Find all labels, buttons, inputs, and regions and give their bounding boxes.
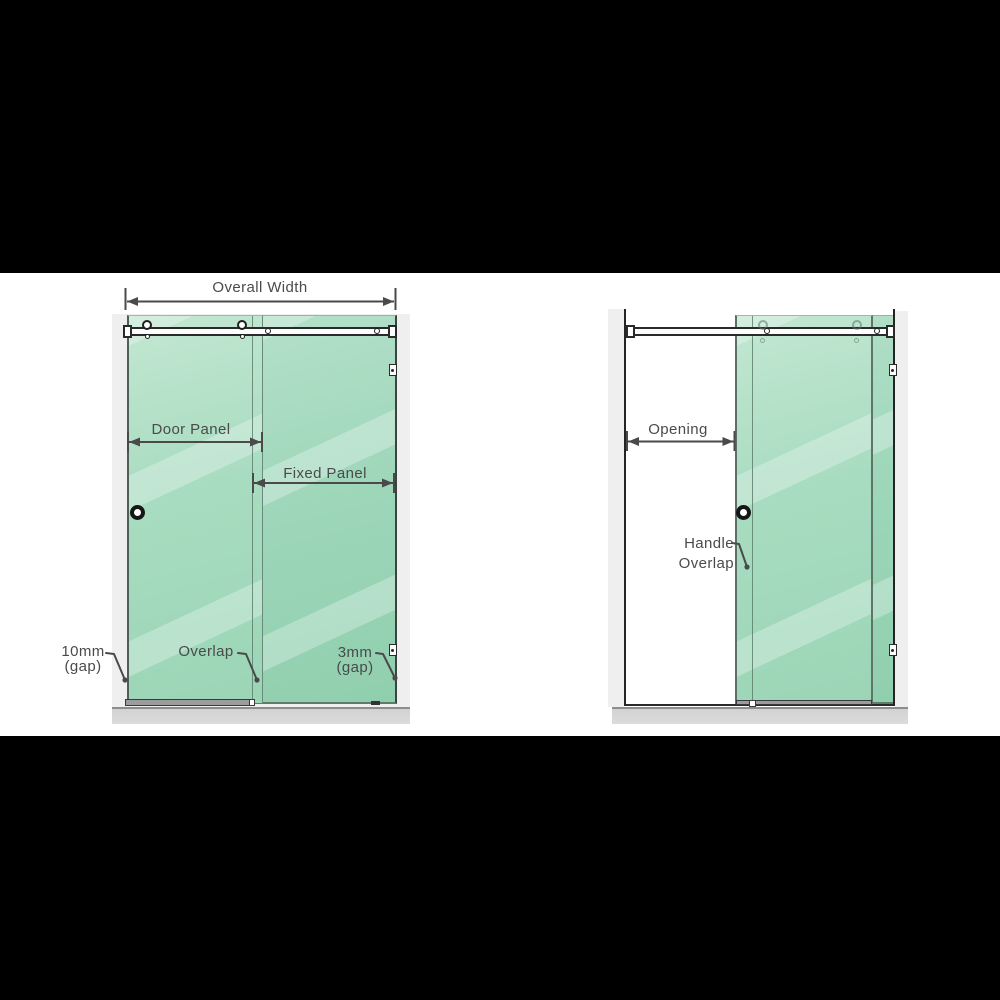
roller-bolt-left-faint <box>760 338 765 343</box>
wall-bracket-bottom-open <box>889 644 897 656</box>
opening-dimension-arrow <box>621 429 741 453</box>
leader-line-10mm-gap <box>104 648 130 686</box>
door-bottom-seal <box>125 699 254 706</box>
roller-bolt-right <box>240 334 245 339</box>
track-mount-dot-right-open <box>874 328 880 334</box>
door-handle-knob <box>130 505 145 520</box>
rail-end-cap-right-open <box>886 325 895 338</box>
door-roller-right-faint <box>852 320 862 330</box>
track-mount-dot-left <box>265 328 271 334</box>
door-panel-dimension-arrow <box>122 430 268 454</box>
floor-base-open <box>612 707 908 724</box>
roller-bolt-right-faint <box>854 338 859 343</box>
track-mount-dot-left-open <box>764 328 770 334</box>
handle-overlap-line1: Handle <box>658 534 734 554</box>
handle-overlap-line2: Overlap <box>658 554 734 574</box>
handle-overlap-label: Handle Overlap <box>658 534 734 574</box>
overall-width-dimension-arrow <box>118 286 402 312</box>
wall-strip-left <box>608 309 624 707</box>
leader-line-3mm-gap <box>374 648 400 684</box>
floor-base <box>112 707 410 724</box>
overlap-label: Overlap <box>171 644 241 659</box>
gap-left-unit: (gap) <box>56 659 110 674</box>
wall-bracket-top <box>389 364 397 376</box>
rail-end-cap-left <box>123 325 132 338</box>
fixed-panel-edge-seam-open <box>752 316 753 703</box>
wall-edge-line-left <box>624 309 626 706</box>
fixed-panel-dimension-arrow <box>247 471 401 495</box>
wall-bracket-top-open <box>889 364 897 376</box>
floor-guide-block <box>749 700 756 707</box>
rail-end-cap-left-open <box>626 325 635 338</box>
door-bottom-seal-open <box>736 700 872 705</box>
door-roller-right <box>237 320 247 330</box>
leader-line-handle-overlap <box>730 538 752 572</box>
rail-end-cap-right <box>388 325 397 338</box>
fixed-panel-bottom-block <box>371 701 380 705</box>
gap-left-label: 10mm (gap) <box>56 644 110 674</box>
track-mount-dot-right <box>374 328 380 334</box>
gap-right-unit: (gap) <box>330 660 380 675</box>
leader-line-overlap <box>236 648 262 686</box>
door-handle-knob-open <box>736 505 751 520</box>
gap-left-value: 10mm <box>56 644 110 659</box>
door-roller-left <box>142 320 152 330</box>
gap-right-label: 3mm (gap) <box>330 645 380 675</box>
roller-bolt-left <box>145 334 150 339</box>
gap-right-value: 3mm <box>330 645 380 660</box>
diagram-canvas: Overall Width Door Panel Fixed Panel <box>0 0 1000 1000</box>
fixed-panel-edge-seam <box>252 316 253 703</box>
door-panel-glass-open <box>735 315 873 704</box>
door-bottom-guide <box>249 699 255 706</box>
top-track-rail <box>124 327 397 336</box>
